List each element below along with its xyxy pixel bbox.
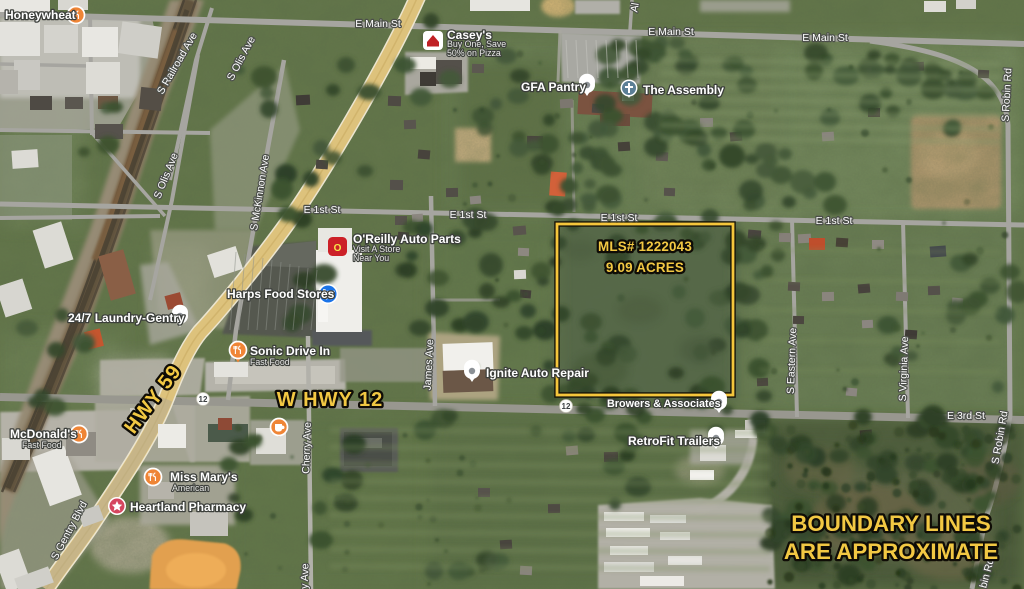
svg-text:GFA Pantry: GFA Pantry [521, 80, 586, 94]
svg-text:McDonald's: McDonald's [10, 427, 77, 441]
svg-text:Sonic Drive In: Sonic Drive In [250, 344, 330, 358]
svg-text:E Main St: E Main St [648, 26, 694, 38]
svg-text:9.09 ACRES: 9.09 ACRES [606, 260, 684, 275]
svg-text:S Virginia Ave: S Virginia Ave [897, 336, 911, 402]
svg-text:O: O [334, 243, 342, 254]
svg-text:BOUNDARY LINES: BOUNDARY LINES [791, 511, 990, 536]
svg-text:Cherry Ave: Cherry Ave [300, 422, 314, 474]
svg-text:S Eastern Ave: S Eastern Ave [785, 327, 799, 394]
svg-text:Browers & Associates: Browers & Associates [607, 398, 721, 410]
svg-text:E 3rd St: E 3rd St [947, 410, 985, 422]
svg-text:Miss Mary's: Miss Mary's [170, 470, 238, 484]
svg-text:E 1st St: E 1st St [450, 209, 487, 221]
svg-text:E Main St: E Main St [802, 32, 848, 44]
svg-text:E 1st St: E 1st St [816, 215, 853, 227]
svg-text:Harps Food Stores: Harps Food Stores [227, 287, 335, 301]
svg-text:E 1st St: E 1st St [304, 204, 341, 216]
svg-text:MLS# 1222043: MLS# 1222043 [598, 239, 692, 254]
svg-text:Ignite Auto Repair: Ignite Auto Repair [486, 366, 589, 380]
svg-text:ARE APPROXIMATE: ARE APPROXIMATE [784, 539, 998, 564]
svg-text:W HWY 12: W HWY 12 [277, 389, 384, 411]
svg-text:E 1st St: E 1st St [601, 212, 638, 224]
svg-text:Heartland Pharmacy: Heartland Pharmacy [130, 500, 246, 514]
svg-text:The Assembly: The Assembly [643, 83, 724, 97]
svg-text:12: 12 [562, 402, 571, 411]
svg-text:12: 12 [199, 395, 208, 404]
svg-text:Fast Food: Fast Food [250, 357, 290, 367]
svg-text:50% on Pizza: 50% on Pizza [447, 48, 501, 58]
svg-text:Fast Food: Fast Food [22, 440, 62, 450]
svg-text:24/7 Laundry-Gentry: 24/7 Laundry-Gentry [68, 311, 185, 325]
svg-text:Honeywheat: Honeywheat [5, 8, 76, 22]
svg-text:ry Ave: ry Ave [298, 563, 311, 589]
svg-text:RetroFit Trailers: RetroFit Trailers [628, 434, 720, 448]
svg-text:American: American [172, 483, 209, 493]
svg-text:E Main St: E Main St [355, 18, 401, 30]
svg-text:Near You: Near You [353, 253, 389, 263]
